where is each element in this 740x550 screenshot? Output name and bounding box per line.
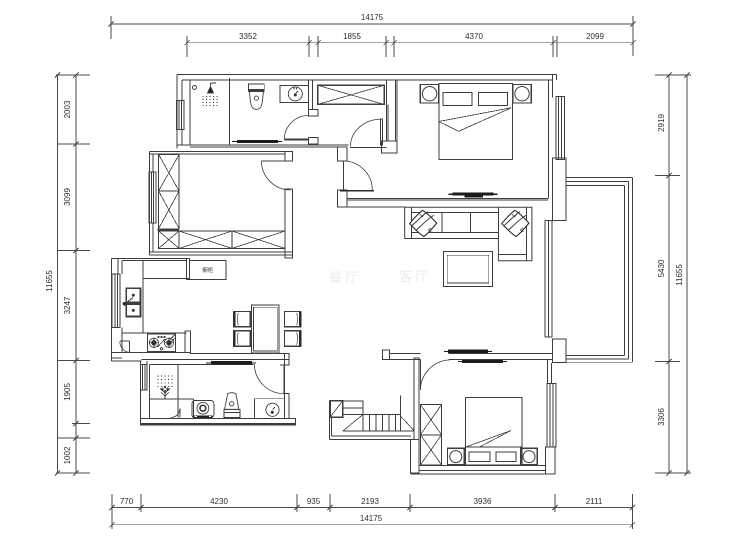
svg-text:3247: 3247: [63, 296, 72, 314]
svg-text:2099: 2099: [586, 32, 604, 41]
svg-text:4230: 4230: [210, 497, 228, 506]
svg-text:1855: 1855: [343, 32, 361, 41]
svg-text:2111: 2111: [586, 497, 603, 506]
svg-text:4370: 4370: [465, 32, 483, 41]
svg-text:5430: 5430: [657, 259, 666, 277]
svg-text:3936: 3936: [474, 497, 492, 506]
svg-text:3099: 3099: [63, 188, 72, 206]
svg-text:14175: 14175: [360, 514, 383, 523]
svg-text:餐厅: 餐厅: [329, 270, 361, 285]
svg-text:橱柜: 橱柜: [202, 266, 214, 274]
svg-text:935: 935: [307, 497, 321, 506]
svg-text:770: 770: [120, 497, 134, 506]
svg-text:14175: 14175: [361, 13, 384, 22]
svg-text:2003: 2003: [63, 100, 72, 118]
svg-text:3352: 3352: [239, 32, 257, 41]
svg-text:11655: 11655: [675, 264, 684, 286]
svg-text:2193: 2193: [361, 497, 379, 506]
svg-text:11655: 11655: [45, 270, 54, 292]
svg-text:1002: 1002: [63, 446, 72, 464]
svg-text:3306: 3306: [657, 408, 666, 426]
svg-text:客厅: 客厅: [399, 269, 431, 284]
svg-text:1905: 1905: [63, 383, 72, 401]
svg-text:2919: 2919: [657, 114, 666, 132]
